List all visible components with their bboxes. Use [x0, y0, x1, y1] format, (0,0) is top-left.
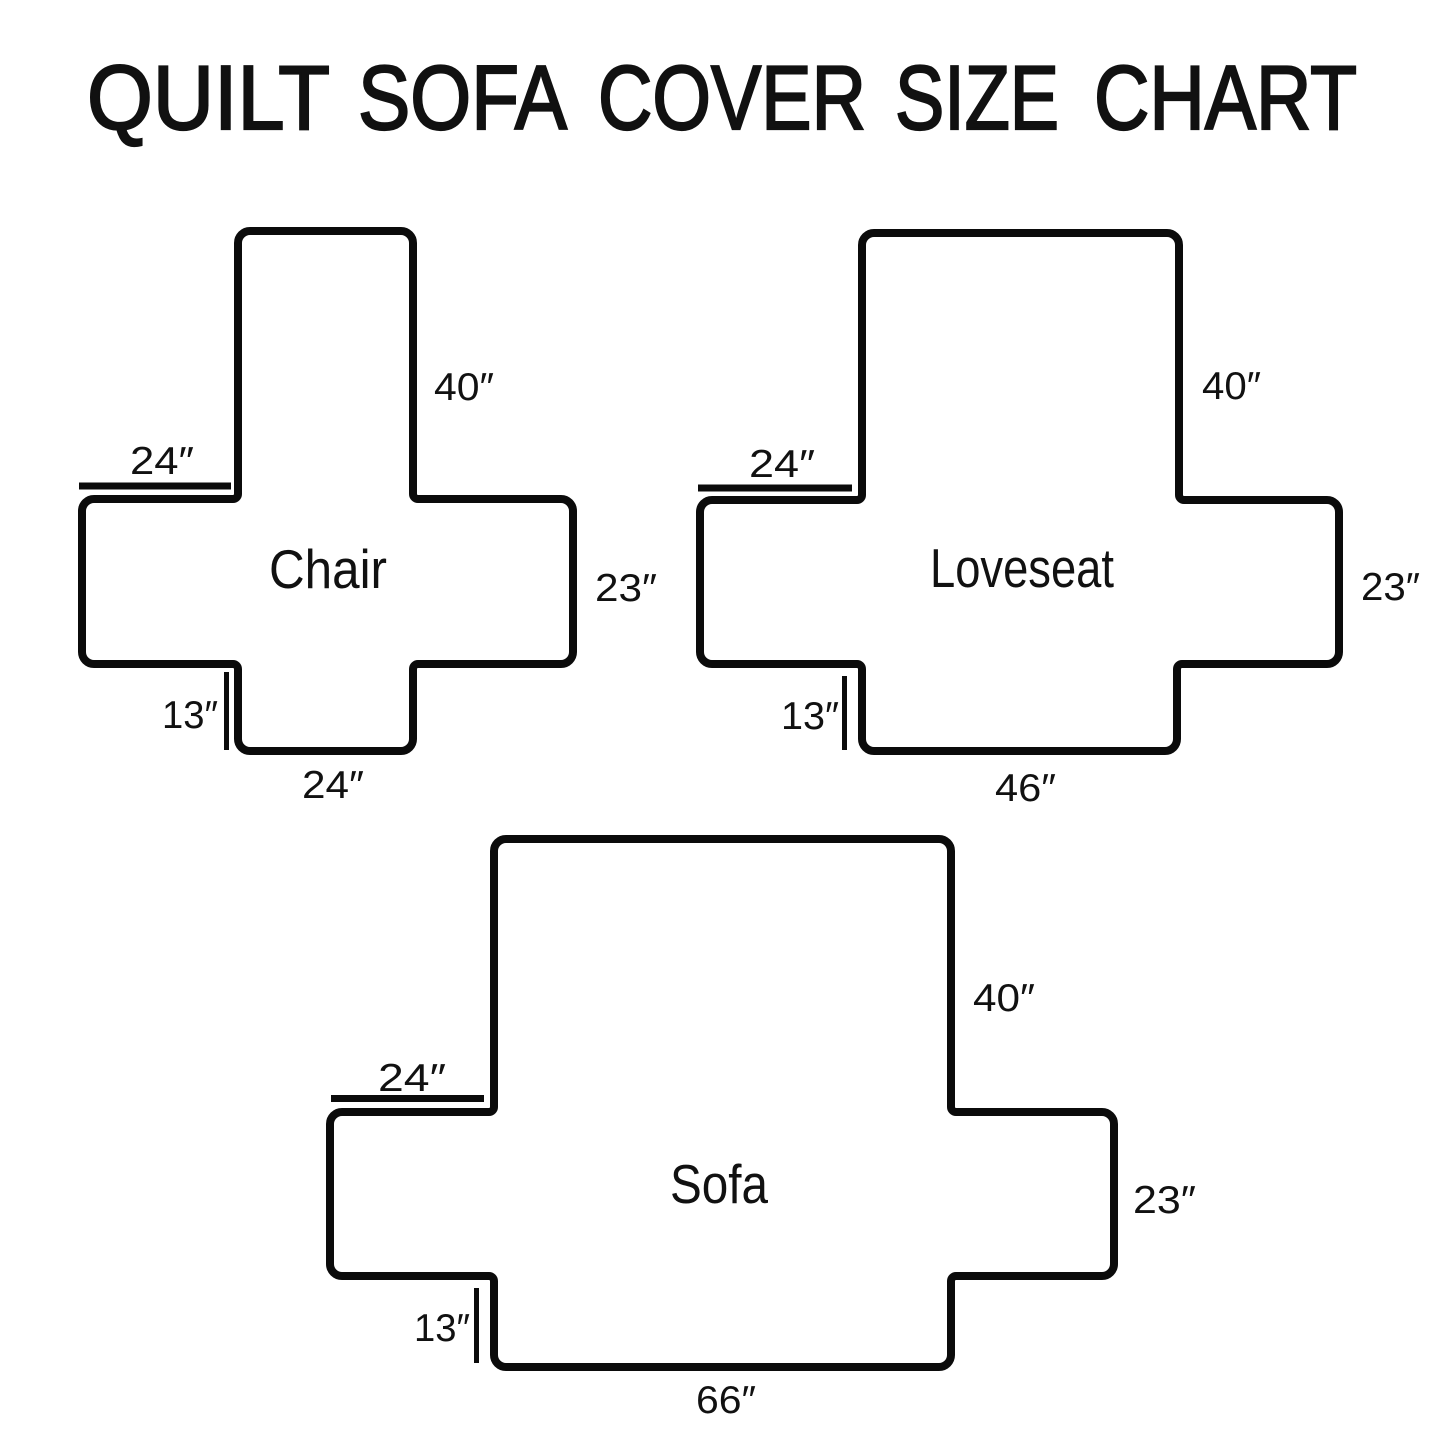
- svg-text:23″: 23″: [1133, 1179, 1196, 1222]
- svg-text:SOFA: SOFA: [358, 48, 567, 149]
- svg-text:46″: 46″: [995, 767, 1056, 810]
- svg-text:13″: 13″: [162, 694, 218, 737]
- svg-text:40″: 40″: [434, 366, 494, 409]
- svg-text:13″: 13″: [414, 1307, 470, 1350]
- svg-text:40″: 40″: [1202, 365, 1261, 408]
- svg-text:CHART: CHART: [1094, 48, 1357, 149]
- svg-text:QUILT: QUILT: [87, 48, 330, 149]
- svg-text:SIZE: SIZE: [895, 48, 1059, 149]
- svg-text:66″: 66″: [696, 1379, 756, 1422]
- svg-text:24″: 24″: [378, 1057, 446, 1100]
- svg-text:COVER: COVER: [598, 48, 866, 149]
- svg-text:Loveseat: Loveseat: [930, 537, 1114, 599]
- svg-text:24″: 24″: [302, 764, 364, 807]
- svg-text:40″: 40″: [973, 977, 1035, 1020]
- svg-text:24″: 24″: [749, 443, 815, 486]
- svg-text:Sofa: Sofa: [670, 1153, 768, 1215]
- svg-text:23″: 23″: [595, 567, 657, 610]
- svg-text:23″: 23″: [1361, 566, 1420, 609]
- svg-text:Chair: Chair: [269, 538, 387, 600]
- svg-text:13″: 13″: [781, 695, 839, 738]
- svg-text:24″: 24″: [130, 440, 194, 483]
